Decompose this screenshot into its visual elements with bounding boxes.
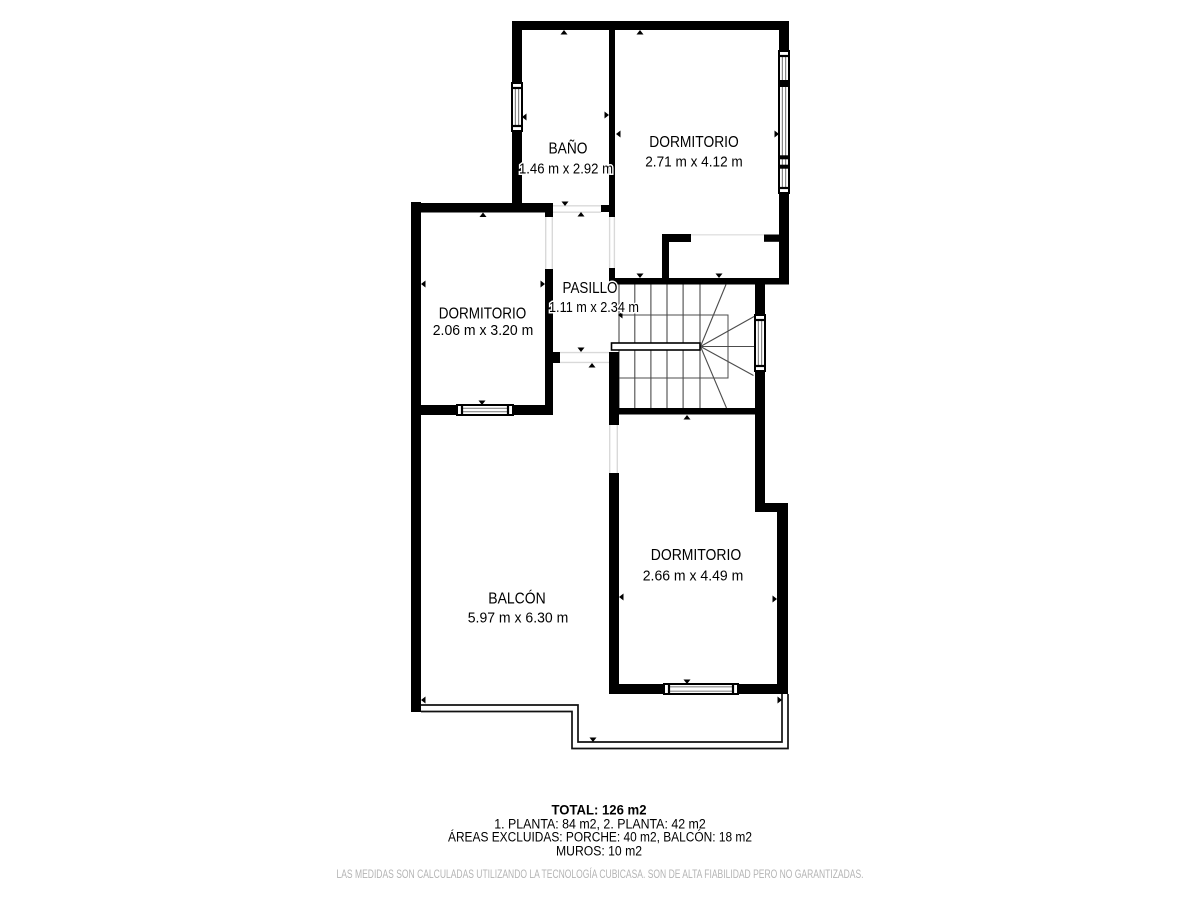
svg-text:PASILLO: PASILLO bbox=[563, 280, 618, 297]
svg-text:2.66 m x 4.49 m: 2.66 m x 4.49 m bbox=[643, 569, 744, 585]
svg-text:5.97 m x 6.30 m: 5.97 m x 6.30 m bbox=[468, 611, 569, 627]
svg-text:BALCÓN: BALCÓN bbox=[488, 591, 546, 608]
svg-text:BAÑO: BAÑO bbox=[549, 141, 588, 158]
svg-text:TOTAL: 126 m2: TOTAL: 126 m2 bbox=[552, 803, 647, 818]
svg-text:DORMITORIO: DORMITORIO bbox=[649, 134, 739, 151]
svg-text:2.06 m x 3.20 m: 2.06 m x 3.20 m bbox=[433, 323, 534, 339]
svg-text:1.46 m x 2.92 m: 1.46 m x 2.92 m bbox=[519, 162, 613, 178]
svg-text:MUROS: 10 m2: MUROS: 10 m2 bbox=[556, 844, 642, 859]
svg-text:ÁREAS EXCLUIDAS: PORCHE: 40 m2: ÁREAS EXCLUIDAS: PORCHE: 40 m2, BALCÓN: … bbox=[448, 830, 752, 845]
svg-text:DORMITORIO: DORMITORIO bbox=[651, 547, 742, 564]
svg-text:DORMITORIO: DORMITORIO bbox=[439, 306, 527, 323]
svg-text:LAS MEDIDAS SON CALCULADAS UTI: LAS MEDIDAS SON CALCULADAS UTILIZANDO LA… bbox=[337, 866, 864, 881]
svg-text:1.11 m x 2.34 m: 1.11 m x 2.34 m bbox=[549, 300, 639, 316]
svg-text:2.71 m x 4.12 m: 2.71 m x 4.12 m bbox=[645, 154, 743, 170]
